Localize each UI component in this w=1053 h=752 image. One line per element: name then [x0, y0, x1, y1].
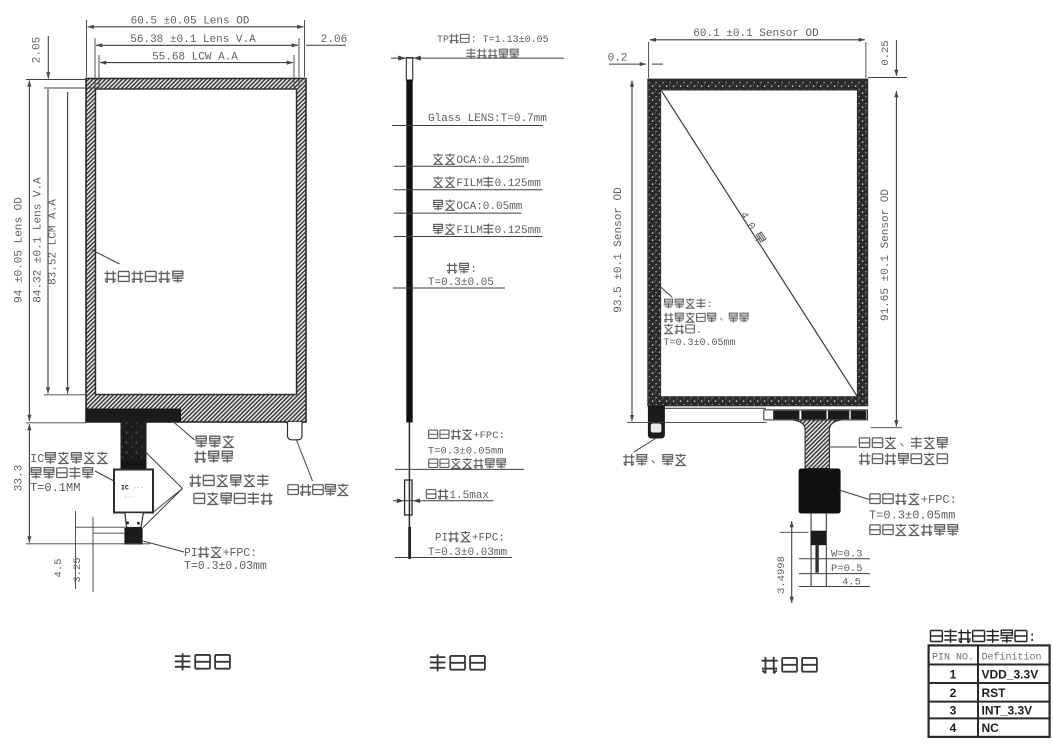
svg-text:PI: PI	[184, 547, 198, 560]
svg-text:0.125mm: 0.125mm	[495, 178, 542, 190]
svg-text:T=0.3±0.03mm: T=0.3±0.03mm	[184, 560, 267, 573]
svg-text:4: 4	[950, 721, 957, 735]
svg-text:60.5 ±0.05 Lens OD: 60.5 ±0.05 Lens OD	[131, 16, 250, 28]
svg-text::: :	[470, 264, 477, 276]
svg-text:T=0.3±0.05mm: T=0.3±0.05mm	[664, 338, 736, 349]
svg-text:1.5max: 1.5max	[449, 490, 489, 502]
svg-text:OCA:0.05mm: OCA:0.05mm	[456, 201, 522, 213]
svg-text:94 ±0.05 Lens OD: 94 ±0.05 Lens OD	[14, 197, 26, 303]
svg-text:NC: NC	[982, 721, 1000, 735]
svg-text:0.25: 0.25	[880, 40, 892, 65]
svg-text:FILM: FILM	[456, 225, 482, 237]
svg-text:RST: RST	[982, 686, 1007, 700]
svg-text:91.65 ±0.1 Sensor OD: 91.65 ±0.1 Sensor OD	[880, 189, 892, 321]
svg-text:33.3: 33.3	[14, 465, 26, 491]
svg-text:3: 3	[950, 704, 957, 718]
svg-text:VDD_3.3V: VDD_3.3V	[982, 668, 1039, 682]
svg-text:.: .	[696, 326, 702, 337]
svg-text:TP: TP	[437, 35, 449, 46]
svg-text:T=0.3±0.05mm: T=0.3±0.05mm	[428, 446, 504, 458]
svg-text:IC: IC	[30, 452, 44, 466]
svg-text:+FPC:: +FPC:	[472, 533, 505, 545]
svg-text:PIN NO.: PIN NO.	[932, 653, 974, 664]
svg-text::: :	[1028, 631, 1036, 646]
svg-text:3.25: 3.25	[72, 557, 84, 582]
svg-text:+FPC:: +FPC:	[223, 547, 258, 560]
svg-text:T=0.3±0.05mm: T=0.3±0.05mm	[869, 509, 955, 523]
svg-text:3.4998: 3.4998	[776, 556, 788, 594]
svg-text:PI: PI	[435, 533, 448, 545]
svg-text:1: 1	[950, 668, 957, 682]
svg-text:2.05: 2.05	[32, 37, 44, 63]
svg-text:2: 2	[950, 686, 957, 700]
svg-text:Definition: Definition	[982, 652, 1042, 664]
svg-text:···: ···	[124, 494, 135, 501]
svg-text:0.125mm: 0.125mm	[495, 225, 542, 237]
svg-text:···: ···	[133, 485, 144, 492]
svg-text:+FPC:: +FPC:	[921, 493, 957, 507]
svg-text:Glass LENS:T=0.7mm: Glass LENS:T=0.7mm	[428, 113, 547, 125]
svg-text:: T=1.13±0.05: : T=1.13±0.05	[471, 35, 549, 46]
svg-text:OCA:0.125mm: OCA:0.125mm	[456, 155, 529, 167]
svg-text:FILM: FILM	[456, 178, 482, 190]
svg-text:T=0.3±0.05: T=0.3±0.05	[428, 277, 494, 289]
svg-text:4.5: 4.5	[53, 559, 65, 578]
svg-text:84.32 ±0.1 Lens V.A: 84.32 ±0.1 Lens V.A	[33, 177, 45, 303]
svg-text:IC: IC	[121, 485, 129, 492]
svg-text:0.2: 0.2	[608, 53, 628, 65]
svg-text:60.1 ±0.1 Sensor OD: 60.1 ±0.1 Sensor OD	[693, 28, 819, 40]
svg-text:55.68 LCW A.A: 55.68 LCW A.A	[152, 52, 238, 64]
svg-text::: :	[707, 300, 713, 311]
svg-text:56.38 ±0.1 Lens V.A: 56.38 ±0.1 Lens V.A	[130, 34, 256, 46]
svg-text:+FPC:: +FPC:	[473, 430, 505, 442]
svg-text:83.52 LCM A.A: 83.52 LCM A.A	[48, 199, 60, 285]
svg-text:2.06: 2.06	[321, 34, 347, 46]
svg-text:93.5 ±0.1 Sensor OD: 93.5 ±0.1 Sensor OD	[613, 187, 625, 313]
svg-text:INT_3.3V: INT_3.3V	[982, 704, 1033, 718]
svg-text:T=0.1MM: T=0.1MM	[30, 481, 80, 495]
